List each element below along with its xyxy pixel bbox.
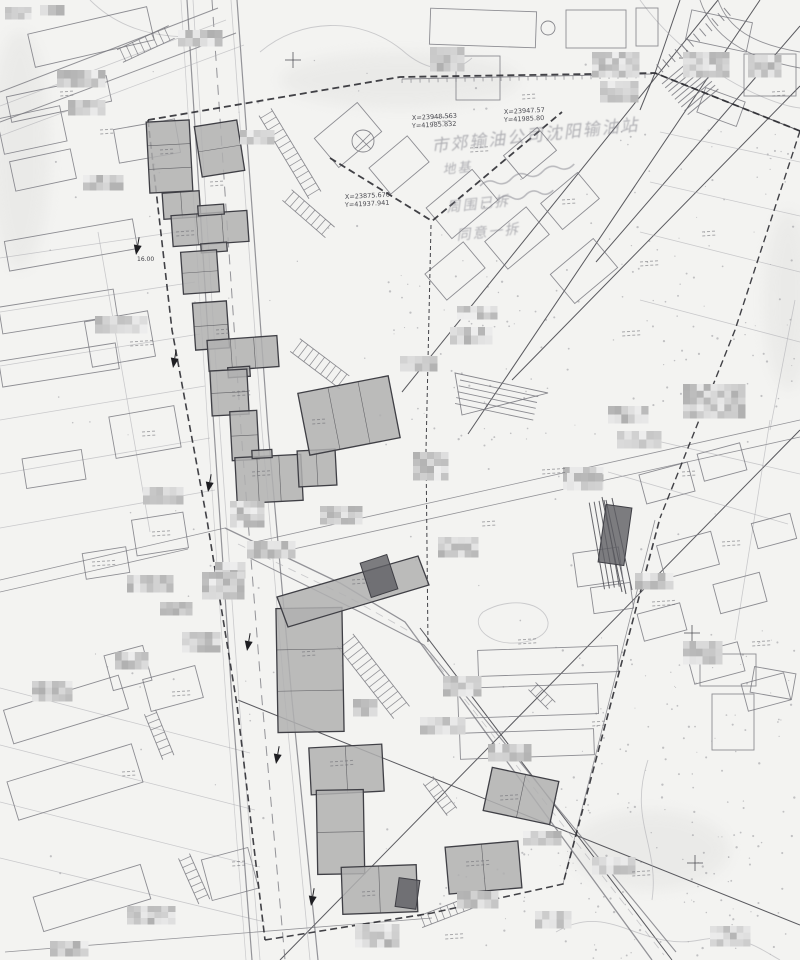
speckle-dot (770, 158, 771, 159)
crossing-ladder (423, 776, 457, 815)
speckle-dot (790, 704, 792, 706)
building-footprint (146, 120, 193, 193)
speckle-dot (625, 750, 627, 752)
mosaic-cell (743, 939, 750, 946)
mosaic-cell (420, 459, 428, 467)
mosaic-cell (209, 586, 217, 593)
mosaic-cell (178, 30, 186, 39)
speckle-dot (188, 595, 190, 597)
ladder-rung (433, 790, 443, 797)
mosaic-cell (59, 681, 66, 688)
speckle-dot (273, 672, 275, 674)
mosaic-cell (709, 649, 716, 657)
mosaic-cell (711, 411, 718, 418)
redaction-block (450, 327, 493, 345)
mosaic-cell (665, 581, 673, 590)
mosaic-cell (646, 440, 654, 449)
mosaic-cell (334, 512, 342, 519)
speckle-dot (600, 708, 601, 709)
building-group (146, 120, 193, 193)
mosaic-cell (690, 649, 697, 657)
speckle-dot (594, 433, 596, 435)
mosaic-cell (592, 65, 599, 72)
mosaic-cell (605, 52, 612, 59)
mosaic-cell (140, 316, 148, 325)
mosaic-cell (163, 487, 170, 496)
mosaic-cell (683, 58, 690, 65)
ladder-rung (446, 807, 456, 814)
speckle-dot (493, 436, 495, 438)
mosaic-cell (160, 602, 167, 609)
speckle-dot (530, 378, 532, 380)
mosaic-cell (619, 71, 626, 78)
speckle-dot (685, 359, 687, 361)
mosaic-cell (267, 130, 274, 138)
speckle-dot (601, 637, 602, 638)
speckle-dot (674, 360, 675, 361)
hatch-line (693, 34, 699, 42)
mosaic-cell (717, 411, 724, 418)
speckle-dot (680, 393, 682, 395)
speckle-dot (453, 756, 455, 758)
mosaic-cell (626, 58, 633, 65)
mosaic-cell (630, 95, 638, 103)
mosaic-cell (182, 639, 190, 646)
mosaic-cell (450, 55, 457, 64)
mosaic-cell (212, 639, 220, 646)
mosaic-cell (445, 544, 452, 551)
mosaic-cell (531, 831, 539, 839)
speckle-dot (756, 177, 757, 178)
mosaic-cell (697, 404, 704, 411)
ladder-rung (321, 361, 331, 374)
mosaic-cell (457, 336, 465, 345)
mosaic-cell (250, 521, 257, 528)
mosaic-cell (538, 838, 546, 846)
mosaic-cell (327, 506, 335, 513)
mosaic-cell (703, 58, 710, 65)
building-group (276, 607, 344, 732)
mosaic-cell (250, 501, 257, 508)
arrow-tail (138, 237, 139, 245)
mosaic-cell (710, 933, 717, 940)
mosaic-cell (83, 100, 91, 108)
mosaic-cell (738, 398, 745, 405)
mosaic-cell (25, 7, 32, 14)
building-group (198, 204, 225, 216)
mosaic-cell (355, 939, 363, 947)
speckle-dot (590, 222, 592, 224)
mosaic-cell (535, 920, 543, 929)
mosaic-cell (441, 473, 449, 481)
mosaic-cell (361, 699, 370, 708)
speckle-dot (633, 397, 635, 399)
speckle-dot (619, 748, 621, 750)
mosaic-cell (606, 857, 614, 866)
mosaic-cell (755, 55, 762, 63)
speckle-dot (634, 192, 636, 194)
speckle-dot (58, 396, 60, 398)
speckle-dot (735, 751, 737, 753)
speckle-dot (547, 387, 549, 389)
speckle-dot (424, 413, 425, 414)
speckle-dot (674, 256, 675, 257)
mosaic-cell (549, 911, 557, 920)
mosaic-cell (127, 906, 134, 913)
mosaic-cell (490, 313, 497, 320)
scan-artifact-layer (0, 30, 800, 890)
mosaic-cell (205, 632, 213, 639)
speckle-dot (496, 260, 498, 262)
mosaic-cell (624, 431, 632, 440)
mosaic-cell (457, 306, 464, 313)
mosaic-cell (135, 661, 142, 670)
mosaic-cell (628, 857, 636, 866)
outline-building (429, 8, 536, 48)
handwritten-note: 同意一拆 (456, 221, 521, 244)
mosaic-cell (173, 602, 180, 609)
mosaic-cell (244, 501, 251, 508)
mosaic-cell (170, 496, 177, 505)
mosaic-cell (18, 13, 25, 20)
mosaic-cell (12, 13, 19, 20)
mosaic-cell (197, 645, 205, 652)
mosaic-cell (683, 391, 690, 398)
speckle-dot (535, 311, 537, 313)
mosaic-cell (341, 518, 349, 525)
mosaic-cell (641, 415, 648, 424)
mosaic-cell (588, 473, 596, 482)
mosaic-cell (523, 831, 531, 839)
mosaic-cell (450, 336, 458, 345)
speckle-dot (570, 564, 572, 566)
speckle-dot (519, 310, 520, 311)
mosaic-cell (441, 466, 449, 474)
mosaic-cell (83, 175, 90, 183)
mosaic-cell (703, 649, 710, 657)
speckle-dot (175, 510, 176, 511)
redaction-block (230, 501, 265, 528)
mosaic-cell (78, 79, 85, 88)
mosaic-cell (254, 550, 261, 559)
mosaic-cell (581, 482, 589, 491)
mosaic-cell (464, 327, 472, 336)
mosaic-cell (445, 537, 452, 544)
mosaic-cell (723, 939, 730, 946)
mosaic-cell (612, 71, 619, 78)
speckle-dot (524, 897, 525, 898)
speckle-dot (510, 433, 512, 435)
ladder-rung (268, 123, 280, 130)
speckle-dot (752, 355, 754, 357)
speckle-dot (454, 663, 455, 664)
speckle-dot (774, 150, 776, 152)
speckle-dot (153, 71, 154, 72)
mosaic-cell (615, 95, 623, 103)
mosaic-cell (619, 52, 626, 59)
mosaic-cell (103, 183, 110, 191)
ladder-rung (158, 31, 164, 44)
speckle-dot (652, 404, 654, 406)
speckle-dot (729, 914, 731, 916)
speckle-dot (210, 565, 212, 567)
mosaic-cell (709, 71, 716, 78)
parcel-line (0, 528, 225, 580)
mosaic-cell (704, 384, 711, 391)
mosaic-cell (485, 327, 493, 336)
speckle-dot (681, 350, 683, 352)
speckle-dot (501, 281, 503, 283)
site-plan-canvas: X=23875.670Y=41937.941X=23948.563Y=41985… (0, 0, 800, 960)
mosaic-cell (413, 473, 421, 481)
speckle-dot (711, 146, 712, 147)
speckle-dot (589, 812, 591, 814)
speckle-dot (411, 418, 413, 420)
mosaic-cell (281, 550, 288, 559)
mosaic-cell (605, 65, 612, 72)
crossing-ladder (528, 682, 555, 709)
mosaic-cell (260, 137, 267, 145)
mosaic-cell (341, 512, 349, 519)
mosaic-cell (626, 71, 633, 78)
mosaic-cell (125, 316, 133, 325)
speckle-dot (486, 276, 487, 277)
mosaic-cell (465, 537, 472, 544)
mosaic-cell (141, 906, 148, 913)
mosaic-cell (413, 466, 421, 474)
mosaic-cell (471, 336, 479, 345)
curve-path (478, 603, 548, 643)
speckle-dot (609, 897, 611, 899)
mosaic-cell (161, 912, 168, 919)
speckle-dot (777, 721, 779, 723)
mosaic-cell (621, 866, 629, 875)
mosaic-cell (32, 688, 39, 695)
speckle-dot (677, 533, 679, 535)
mosaic-cell (632, 65, 639, 72)
ladder-rail (422, 908, 473, 928)
redaction-block (617, 431, 662, 449)
mosaic-cell (75, 108, 83, 116)
speckle-dot (693, 326, 695, 328)
mosaic-cell (154, 906, 161, 913)
mosaic-cell (722, 65, 729, 72)
speckle-dot (711, 335, 713, 337)
mosaic-cell (588, 482, 596, 491)
speckle-dot (621, 264, 622, 265)
speckle-dot (566, 269, 568, 271)
mosaic-cell (240, 130, 247, 138)
ladder-rung (126, 45, 132, 58)
speckle-dot (453, 387, 455, 389)
mosaic-cell (731, 411, 738, 418)
mosaic-cell (96, 175, 103, 183)
elevation-label: 16.00 (137, 256, 154, 263)
speckle-dot (638, 268, 640, 270)
mosaic-cell (639, 431, 647, 440)
mosaic-cell (703, 641, 710, 649)
mosaic-cell (65, 681, 72, 688)
speckle-dot (705, 872, 707, 874)
handwriting-layer: 市郊输油公司沈阳输油站地基周围已拆同意一拆 (430, 115, 641, 244)
mosaic-cell (581, 473, 589, 482)
mosaic-cell (458, 717, 466, 726)
redaction-block (710, 926, 751, 947)
mosaic-cell (237, 521, 244, 528)
mosaic-cell (83, 183, 90, 191)
mosaic-cell (650, 581, 658, 590)
mosaic-cell (441, 459, 449, 467)
mosaic-cell (724, 391, 731, 398)
mosaic-cell (473, 689, 481, 696)
redaction-block (413, 452, 449, 481)
speckle-dot (417, 408, 419, 410)
mosaic-cell (369, 699, 378, 708)
ladder-rung (425, 779, 435, 786)
mosaic-cell (495, 744, 503, 753)
speckle-dot (531, 849, 533, 851)
mosaic-cell (731, 404, 738, 411)
mosaic-cell (711, 391, 718, 398)
mosaic-cell (738, 391, 745, 398)
speckle-dot (696, 752, 697, 753)
mosaic-cell (65, 688, 72, 695)
speckle-dot (728, 881, 729, 882)
outline-building (201, 848, 258, 901)
mosaic-cell (612, 65, 619, 72)
speckle-dot (498, 292, 499, 293)
speckle-dot (754, 232, 755, 233)
mosaic-cell (443, 717, 451, 726)
mosaic-cell (696, 52, 703, 59)
mosaic-cell (161, 918, 168, 925)
speckle-dot (744, 334, 745, 335)
mosaic-cell (546, 838, 554, 846)
mosaic-cell (179, 602, 186, 609)
speckle-dot (484, 401, 486, 403)
speckle-dot (679, 284, 680, 285)
ladder-rung (275, 135, 287, 142)
mosaic-cell (353, 708, 362, 717)
mosaic-cell (190, 632, 198, 639)
mosaic-cell (361, 708, 370, 717)
mosaic-cell (704, 411, 711, 418)
speckle-dot (747, 383, 749, 385)
speckle-dot (215, 784, 216, 785)
mosaic-cell (517, 744, 525, 753)
speckle-dot (468, 321, 470, 323)
redaction-block (523, 831, 562, 846)
mosaic-cell (704, 398, 711, 405)
speckle-dot (678, 773, 680, 775)
mosaic-cell (599, 65, 606, 72)
mosaic-cell (115, 661, 122, 670)
mosaic-cell (261, 541, 268, 550)
speckle-dot (793, 650, 795, 652)
speckle-dot (691, 878, 693, 880)
building-group (445, 841, 522, 894)
mosaic-cell (140, 325, 148, 334)
building-group (316, 790, 364, 875)
speckle-dot (523, 910, 525, 912)
mosaic-cell (608, 88, 616, 96)
building-group (235, 454, 303, 503)
mosaic-cell (182, 645, 190, 652)
speckle-dot (130, 512, 132, 514)
mosaic-cell (608, 406, 615, 415)
speckle-dot (718, 836, 719, 837)
speckle-dot (679, 664, 681, 666)
mosaic-cell (605, 58, 612, 65)
mosaic-cell (464, 891, 471, 900)
mosaic-cell (484, 313, 491, 320)
speckle-dot (526, 438, 527, 439)
speckle-dot (609, 238, 611, 240)
speckle-dot (676, 315, 677, 316)
mosaic-cell (722, 52, 729, 59)
mosaic-cell (709, 52, 716, 59)
mosaic-cell (445, 550, 452, 557)
speckle-dot (582, 751, 583, 752)
mosaic-cell (731, 398, 738, 405)
mosaic-cell (717, 391, 724, 398)
speckle-dot (713, 873, 715, 875)
speckle-dot (706, 912, 708, 914)
mosaic-cell (153, 575, 160, 584)
mosaic-cell (738, 384, 745, 391)
mosaic-cell (717, 404, 724, 411)
speckle-dot (763, 353, 765, 355)
ladder-rung (197, 895, 208, 900)
mosaic-cell (268, 541, 275, 550)
parcel-line (640, 73, 655, 110)
ladder-rung (297, 171, 309, 178)
mosaic-cell (400, 364, 408, 372)
speckle-dot (627, 144, 629, 146)
mosaic-cell (434, 466, 442, 474)
mosaic-cell (215, 38, 223, 47)
mosaic-cell (716, 641, 723, 649)
outline-building (636, 8, 658, 46)
ladder-rung (161, 751, 172, 755)
mosaic-cell (193, 30, 201, 39)
mosaic-cell (615, 415, 622, 424)
mosaic-cell (45, 688, 52, 695)
mosaic-cell (717, 926, 724, 933)
building-footprint (207, 336, 279, 372)
speckle-dot (503, 930, 505, 932)
mosaic-cell (465, 550, 472, 557)
mosaic-cell (377, 932, 385, 940)
mosaic-cell (774, 70, 781, 78)
mosaic-cell (619, 58, 626, 65)
mosaic-cell (690, 71, 697, 78)
mosaic-cell (748, 55, 755, 63)
mosaic-cell (247, 550, 254, 559)
mosaic-cell (95, 325, 103, 334)
mosaic-cell (134, 575, 141, 584)
speckle-dot (540, 346, 542, 348)
speckle-dot (732, 724, 734, 726)
speckle-dot (733, 338, 735, 340)
building-group (181, 250, 220, 294)
ladder-rail (271, 108, 321, 191)
speckle-dot (622, 296, 624, 298)
speckle-dot (485, 107, 487, 109)
mosaic-cell (96, 183, 103, 191)
mosaic-cell (451, 683, 459, 690)
ladder-rung (307, 189, 319, 196)
